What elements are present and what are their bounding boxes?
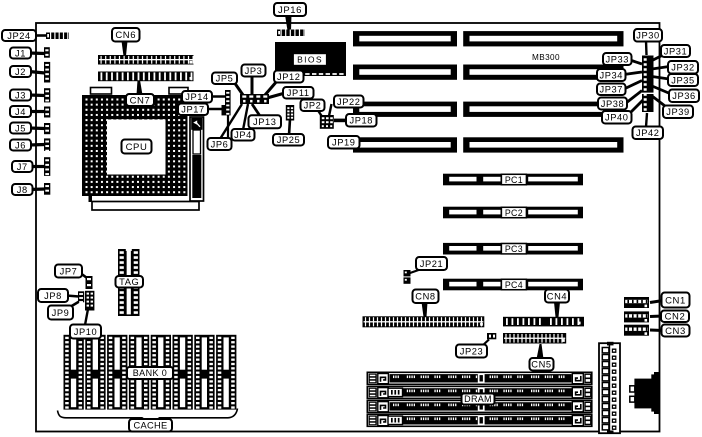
svg-text:PC4: PC4 — [505, 280, 523, 290]
svg-text:JP17: JP17 — [181, 105, 205, 115]
svg-text:JP14: JP14 — [185, 92, 209, 102]
svg-text:JP4: JP4 — [234, 130, 252, 140]
svg-text:J6: J6 — [15, 140, 26, 150]
svg-text:CN7: CN7 — [130, 95, 151, 106]
svg-text:JP21: JP21 — [420, 259, 444, 269]
svg-text:JP38: JP38 — [601, 99, 625, 109]
svg-text:JP13: JP13 — [253, 117, 277, 127]
svg-text:JP19: JP19 — [332, 138, 356, 148]
svg-text:JP9: JP9 — [52, 308, 70, 318]
svg-text:CN6: CN6 — [115, 30, 136, 41]
svg-text:JP23: JP23 — [460, 346, 484, 356]
svg-text:JP11: JP11 — [287, 88, 310, 98]
svg-text:JP42: JP42 — [636, 128, 660, 138]
svg-text:PC1: PC1 — [505, 175, 523, 185]
svg-text:J3: J3 — [15, 90, 26, 100]
svg-text:CACHE: CACHE — [133, 421, 167, 431]
svg-text:JP12: JP12 — [277, 72, 301, 82]
svg-text:DRAM: DRAM — [464, 394, 492, 404]
svg-text:JP16: JP16 — [278, 5, 302, 16]
svg-text:JP8: JP8 — [44, 291, 62, 301]
svg-text:JP40: JP40 — [605, 113, 629, 123]
svg-text:J5: J5 — [15, 123, 26, 133]
svg-text:JP24: JP24 — [7, 31, 31, 41]
svg-text:JP5: JP5 — [216, 74, 234, 84]
svg-text:JP37: JP37 — [599, 85, 623, 95]
svg-text:JP6: JP6 — [211, 139, 229, 149]
svg-text:JP33: JP33 — [605, 54, 629, 64]
svg-text:J7: J7 — [17, 162, 28, 172]
svg-text:PC3: PC3 — [505, 244, 523, 254]
svg-text:JP10: JP10 — [74, 327, 98, 337]
svg-text:JP7: JP7 — [60, 266, 78, 276]
svg-text:J1: J1 — [15, 48, 26, 58]
svg-text:BIOS: BIOS — [297, 54, 323, 64]
svg-text:JP35: JP35 — [671, 75, 695, 85]
svg-text:JP30: JP30 — [636, 31, 660, 41]
svg-text:CPU: CPU — [126, 142, 148, 153]
svg-text:CN1: CN1 — [665, 295, 686, 306]
svg-text:JP36: JP36 — [672, 91, 696, 101]
svg-text:PC2: PC2 — [505, 208, 523, 218]
svg-text:JP32: JP32 — [671, 63, 695, 73]
svg-text:JP39: JP39 — [666, 107, 690, 117]
svg-text:JP34: JP34 — [599, 70, 623, 80]
svg-text:CN8: CN8 — [415, 292, 435, 302]
svg-text:J4: J4 — [15, 107, 26, 117]
svg-text:J2: J2 — [15, 67, 26, 77]
svg-text:J8: J8 — [17, 185, 28, 195]
svg-text:CN4: CN4 — [547, 291, 567, 301]
svg-text:JP2: JP2 — [304, 101, 322, 111]
svg-text:JP25: JP25 — [277, 135, 301, 145]
svg-text:JP18: JP18 — [349, 116, 373, 126]
svg-text:JP3: JP3 — [245, 66, 263, 76]
svg-text:JP22: JP22 — [337, 97, 361, 107]
svg-text:MB300: MB300 — [532, 53, 560, 62]
svg-text:CN2: CN2 — [665, 312, 686, 323]
svg-text:CN3: CN3 — [665, 326, 686, 337]
svg-text:CN5: CN5 — [531, 360, 551, 370]
svg-text:TAG: TAG — [119, 277, 139, 287]
svg-text:JP31: JP31 — [664, 46, 688, 56]
svg-text:BANK 0: BANK 0 — [133, 368, 167, 378]
